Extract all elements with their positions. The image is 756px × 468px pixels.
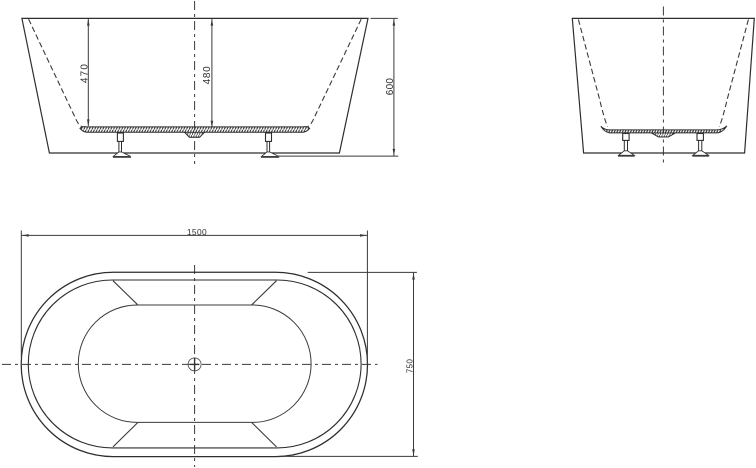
svg-text:480: 480 xyxy=(202,66,213,85)
svg-text:1500: 1500 xyxy=(187,227,207,237)
svg-text:750: 750 xyxy=(406,358,415,373)
svg-text:470: 470 xyxy=(80,63,91,83)
svg-text:600: 600 xyxy=(385,78,396,96)
